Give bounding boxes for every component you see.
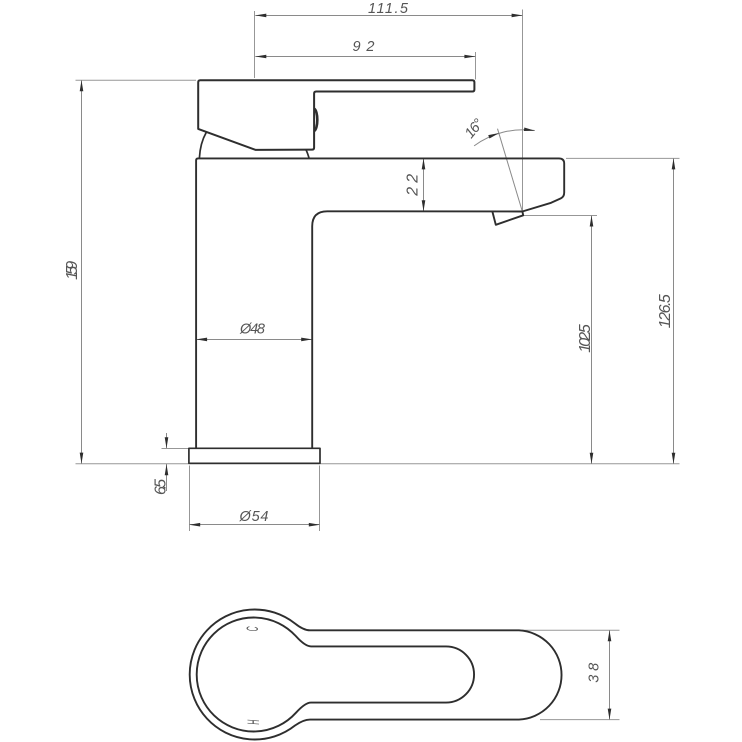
svg-text:Ø48: Ø48 bbox=[239, 322, 265, 338]
svg-text:102.5: 102.5 bbox=[577, 324, 594, 353]
svg-text:Ø54: Ø54 bbox=[239, 509, 269, 525]
svg-text:159: 159 bbox=[64, 261, 81, 280]
svg-text:126.5: 126.5 bbox=[657, 294, 674, 328]
svg-text:6.5: 6.5 bbox=[153, 479, 170, 495]
svg-text:111.5: 111.5 bbox=[368, 1, 409, 17]
svg-text:C: C bbox=[242, 626, 262, 631]
svg-text:H: H bbox=[243, 719, 263, 724]
